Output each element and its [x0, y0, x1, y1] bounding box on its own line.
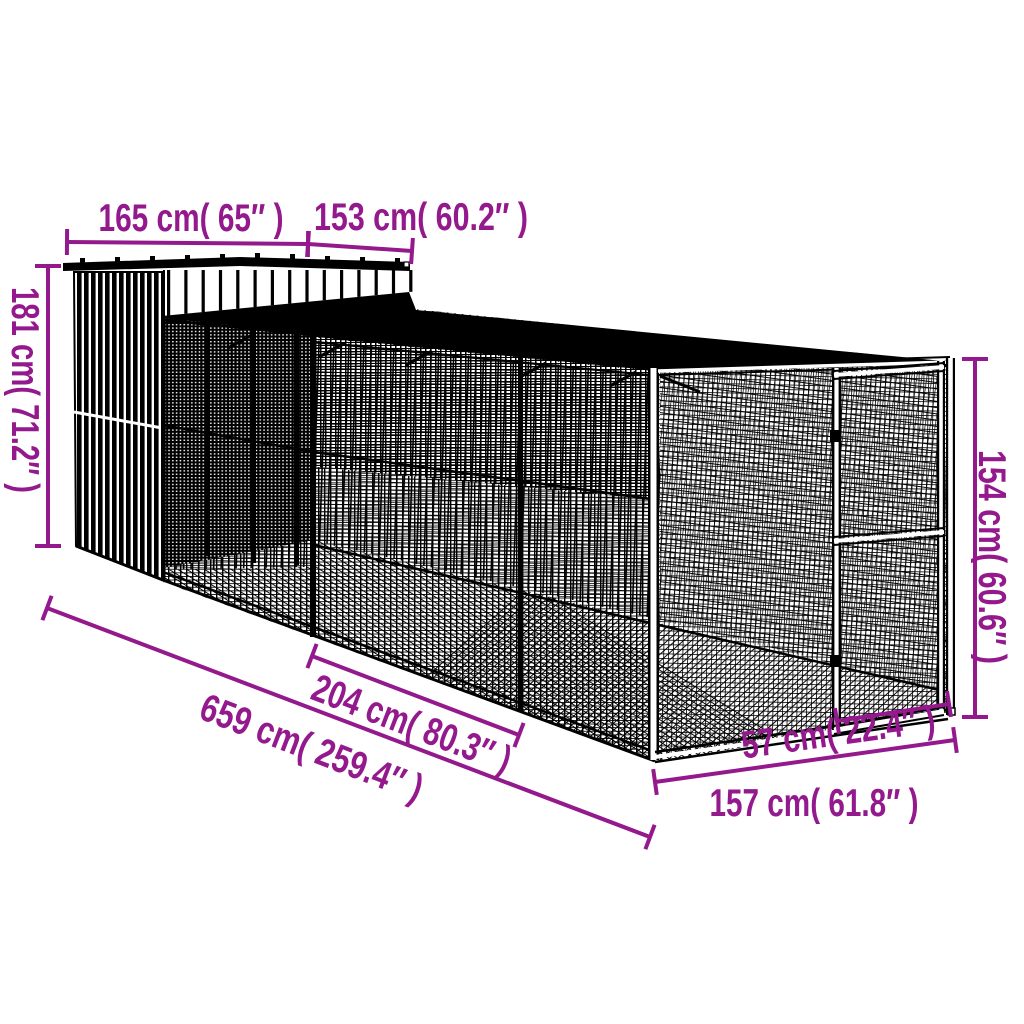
svg-text:165 cm( 65″ ): 165 cm( 65″ ) [99, 197, 284, 240]
svg-text:153 cm( 60.2″ ): 153 cm( 60.2″ ) [314, 196, 528, 239]
svg-text:154 cm( 60.6″ ): 154 cm( 60.6″ ) [970, 450, 1013, 664]
svg-text:157 cm( 61.8″ ): 157 cm( 61.8″ ) [710, 782, 919, 825]
svg-text:181 cm( 71.2″ ): 181 cm( 71.2″ ) [3, 287, 46, 493]
